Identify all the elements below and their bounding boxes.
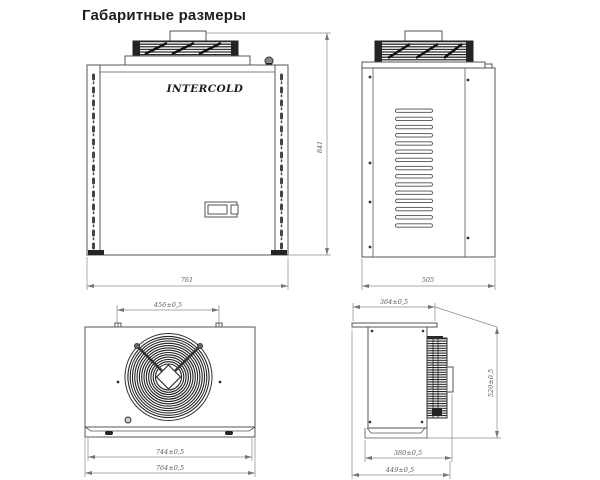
svg-text:449±0,5: 449±0,5 <box>385 466 414 474</box>
svg-text:841: 841 <box>316 141 324 153</box>
screw-dot-right <box>219 381 222 384</box>
vent-louvers <box>395 108 433 231</box>
dim-side-depth: 505 <box>362 259 495 290</box>
base-foot <box>365 428 427 438</box>
svg-text:364±0,5: 364±0,5 <box>380 298 408 306</box>
top-flange <box>352 323 437 327</box>
dim-base-width: 744±0,5 <box>88 438 252 461</box>
top-view: 456±0,5 <box>75 295 330 480</box>
control-panel <box>205 202 238 217</box>
svg-text:761: 761 <box>181 276 193 284</box>
svg-text:456±0,5: 456±0,5 <box>153 301 182 309</box>
brand-logo: INTERCOLD <box>166 83 244 95</box>
screw-dot-left <box>117 381 120 384</box>
dim-front-width: 761 <box>87 257 288 290</box>
dim-overall-width: 764±0,5 <box>85 438 255 477</box>
drawing-page: Габаритные размеры <box>0 0 600 480</box>
rear-side-view: 364±0,5 520±0,5 <box>345 295 515 480</box>
top-fan-block <box>375 41 473 62</box>
bottom-flange <box>85 427 255 437</box>
fan-plinth <box>125 56 250 65</box>
side-bracket <box>447 367 453 392</box>
mounting-tabs <box>115 323 222 327</box>
top-plate-step <box>485 64 492 68</box>
page-title: Габаритные размеры <box>82 7 246 24</box>
svg-text:520±0,5: 520±0,5 <box>487 369 495 397</box>
svg-text:380±0,5: 380±0,5 <box>394 449 422 457</box>
front-view: INTERCOLD 761 841 <box>75 28 330 295</box>
dim-flange-depth: 364±0,5 <box>353 298 435 321</box>
fan-motor-cap <box>170 31 206 41</box>
unit-body-side <box>368 327 427 428</box>
corner-post-left <box>87 65 100 255</box>
top-plate <box>362 62 485 68</box>
corner-post-right <box>275 65 288 255</box>
svg-text:744±0,5: 744±0,5 <box>156 448 184 456</box>
dim-fan-pitch: 456±0,5 <box>117 301 219 322</box>
fan-motor-cap <box>405 31 442 41</box>
svg-text:764±0,5: 764±0,5 <box>156 464 184 472</box>
svg-text:505: 505 <box>422 276 434 284</box>
foot-left <box>88 250 104 255</box>
top-fan-block <box>133 41 238 56</box>
side-view: 505 <box>350 28 515 295</box>
foot-right <box>271 250 287 255</box>
condenser-coil <box>427 336 447 418</box>
drain-screw <box>125 417 131 423</box>
